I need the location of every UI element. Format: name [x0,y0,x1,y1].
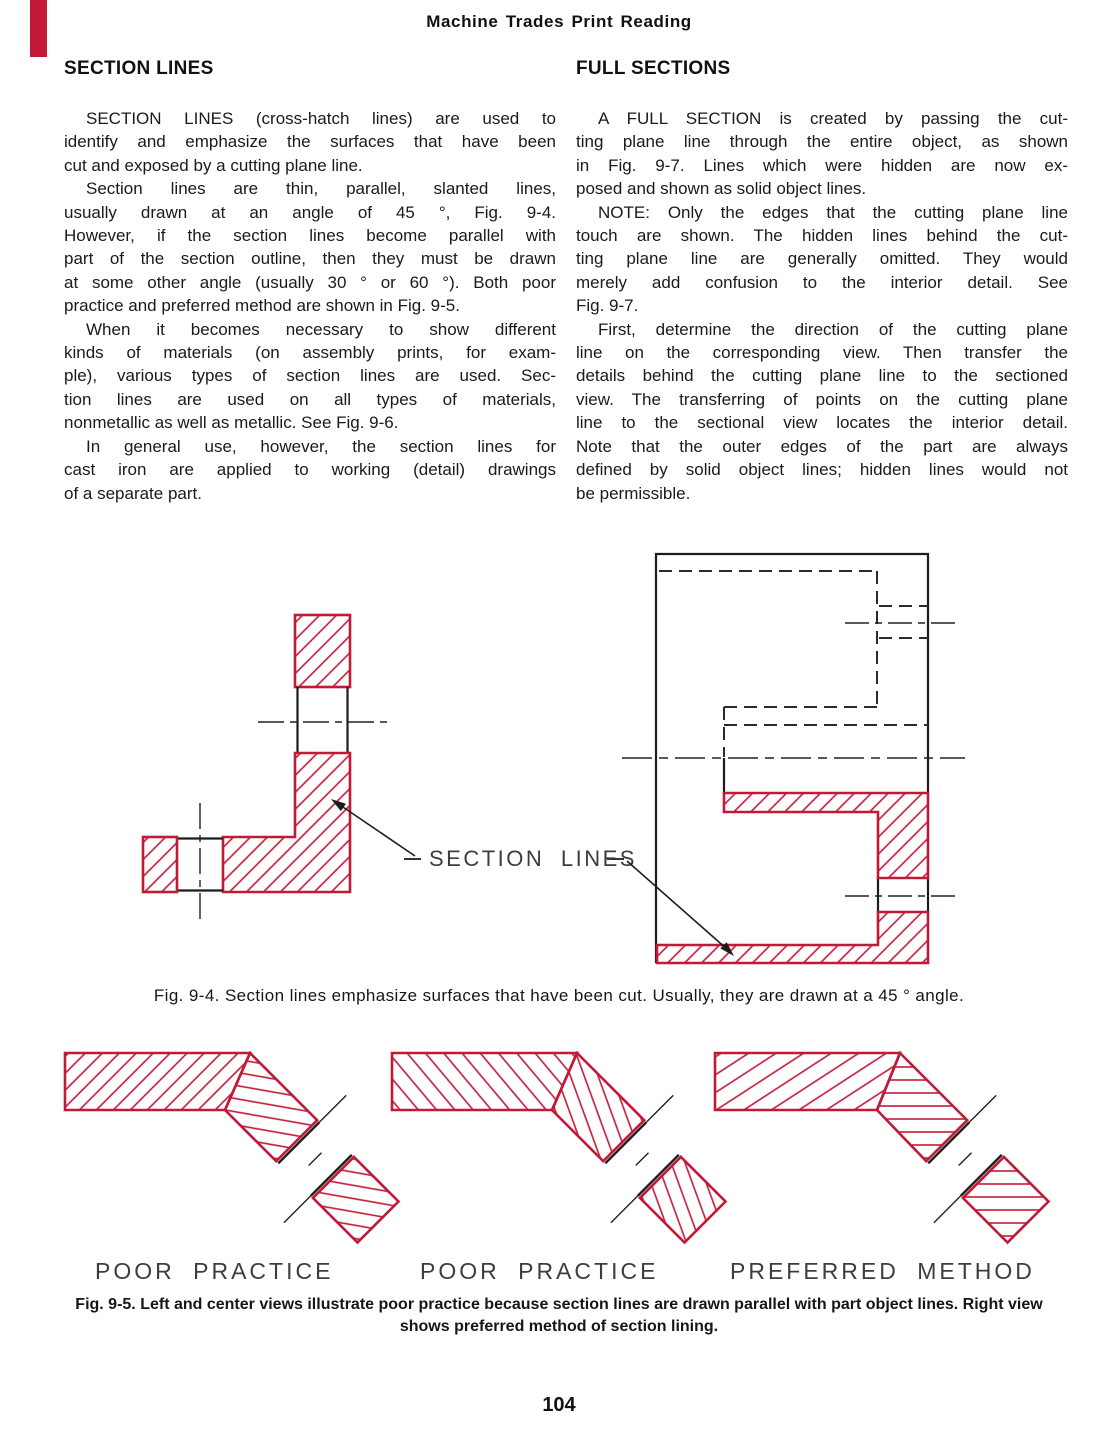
page-number: 104 [0,1394,1118,1417]
hatched-bar [715,1053,900,1110]
hatched-l-body [223,753,350,892]
fig95-part-1 [65,1053,399,1243]
fig94-left-drawing [143,615,388,925]
centerline-tick [969,1095,996,1122]
hatched-bar [65,1053,250,1110]
fig94-label: SECTION LINES [429,846,637,871]
fig95-label-1: POOR PRACTICE [95,1258,333,1284]
centerline-tick [284,1196,311,1223]
fig95-part-3 [715,1053,1049,1243]
fig94-caption: Fig. 9-4. Section lines emphasize surfac… [0,986,1118,1006]
hatched-lower-section [657,912,928,963]
hatched-arm-lower [640,1157,726,1243]
hatched-flange [295,615,350,687]
centerline-dash [959,1153,972,1166]
centerline-tick [934,1196,961,1223]
section-lines-callout: SECTION LINES [331,799,734,956]
hatched-end-block [143,837,177,892]
centerline-dash [636,1153,649,1166]
hatched-bar [392,1053,577,1110]
centerline-tick [319,1095,346,1122]
centerline-tick [646,1095,673,1122]
hatched-arm-lower [963,1157,1049,1243]
hidden-lines [659,571,928,757]
centerline-dash [309,1153,322,1166]
hatched-arm-lower [313,1157,399,1243]
book-page: Machine Trades Print Reading SECTION LIN… [0,0,1118,1452]
fig95-caption: Fig. 9-5. Left and center views illustra… [0,1294,1118,1338]
fig95-label-2: POOR PRACTICE [420,1258,658,1284]
centerline-tick [611,1196,638,1223]
fig95-caption-text: Fig. 9-5. Left and center views illustra… [54,1294,1064,1338]
hatched-upper-section [724,793,928,878]
fig95-part-2 [392,1053,726,1243]
fig95-label-3: PREFERRED METHOD [730,1258,1035,1284]
technical-drawings: SECTION LINES [0,0,1118,1452]
leader-line [627,861,728,950]
